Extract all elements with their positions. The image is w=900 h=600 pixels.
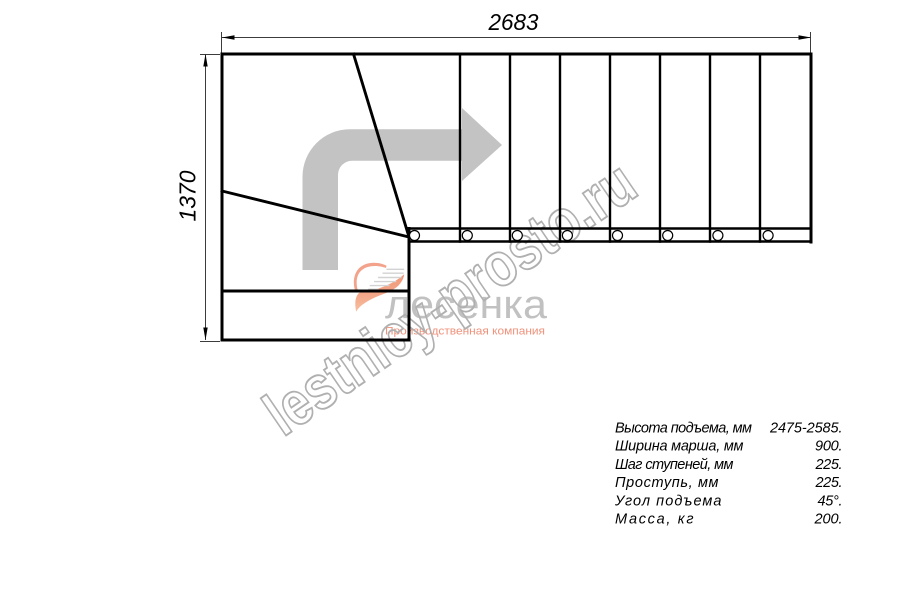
svg-text:2683: 2683 <box>488 9 539 35</box>
svg-text:Шаг ступеней, мм: Шаг ступеней, мм <box>615 457 734 473</box>
svg-text:1370: 1370 <box>175 171 201 222</box>
svg-text:Проступь, мм: Проступь, мм <box>615 475 719 491</box>
svg-text:Масса, кг: Масса, кг <box>615 512 694 528</box>
svg-text:900.: 900. <box>815 439 843 455</box>
svg-text:45°.: 45°. <box>818 493 843 509</box>
svg-text:200.: 200. <box>814 512 843 528</box>
svg-text:225.: 225. <box>815 457 843 473</box>
svg-text:Угол подъема: Угол подъема <box>614 493 722 509</box>
svg-text:225.: 225. <box>815 475 843 491</box>
svg-text:2475-2585.: 2475-2585. <box>769 421 843 437</box>
svg-text:Высота подъема, мм: Высота подъема, мм <box>615 421 752 437</box>
svg-text:Ширина марша, мм: Ширина марша, мм <box>615 439 744 455</box>
